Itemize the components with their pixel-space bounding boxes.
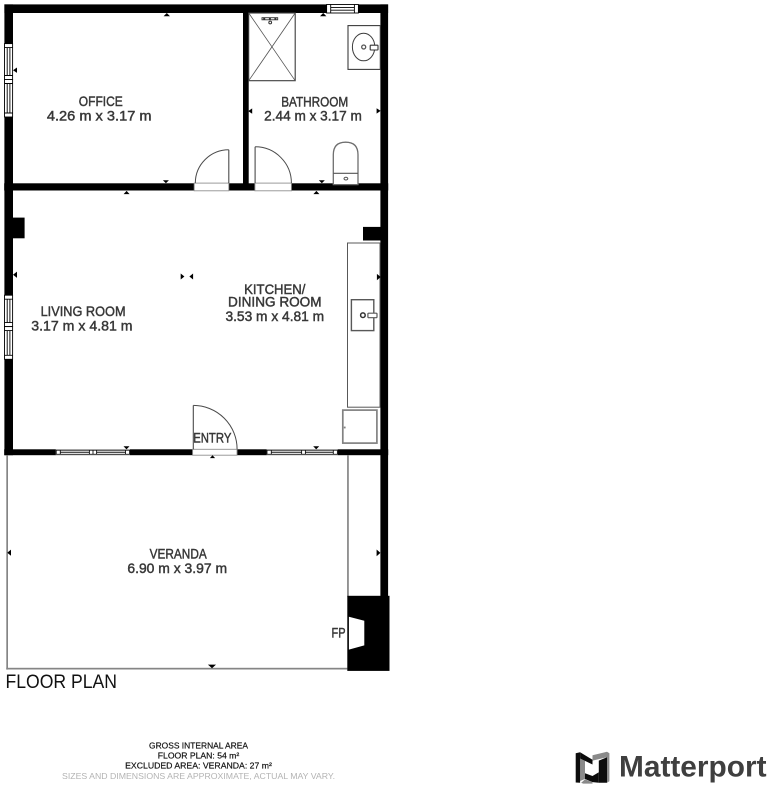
svg-text:EXCLUDED AREA: VERANDA: 27 m²: EXCLUDED AREA: VERANDA: 27 m² [125, 760, 272, 770]
svg-text:OFFICE: OFFICE [79, 94, 123, 109]
svg-text:FLOOR PLAN: FLOOR PLAN [6, 672, 118, 693]
svg-text:FLOOR PLAN: 54 m²: FLOOR PLAN: 54 m² [158, 750, 240, 760]
svg-text:3.17 m x 4.81 m: 3.17 m x 4.81 m [31, 319, 132, 334]
svg-text:3.53 m x 4.81 m: 3.53 m x 4.81 m [225, 309, 324, 324]
svg-text:4.26 m x 3.17 m: 4.26 m x 3.17 m [47, 108, 152, 123]
svg-text:DINING ROOM: DINING ROOM [228, 295, 322, 310]
svg-text:6.90 m x 3.97 m: 6.90 m x 3.97 m [127, 561, 227, 576]
svg-text:GROSS INTERNAL AREA: GROSS INTERNAL AREA [149, 740, 248, 750]
svg-text:SIZES AND DIMENSIONS ARE APPRO: SIZES AND DIMENSIONS ARE APPROXIMATE, AC… [62, 771, 335, 781]
svg-text:FP: FP [332, 625, 346, 640]
svg-text:ENTRY: ENTRY [193, 430, 231, 445]
svg-text:2.44 m x 3.17 m: 2.44 m x 3.17 m [264, 109, 362, 124]
svg-text:Matterport: Matterport [619, 751, 767, 784]
svg-text:VERANDA: VERANDA [150, 547, 208, 562]
svg-text:LIVING ROOM: LIVING ROOM [41, 304, 126, 319]
svg-text:BATHROOM: BATHROOM [281, 95, 348, 110]
